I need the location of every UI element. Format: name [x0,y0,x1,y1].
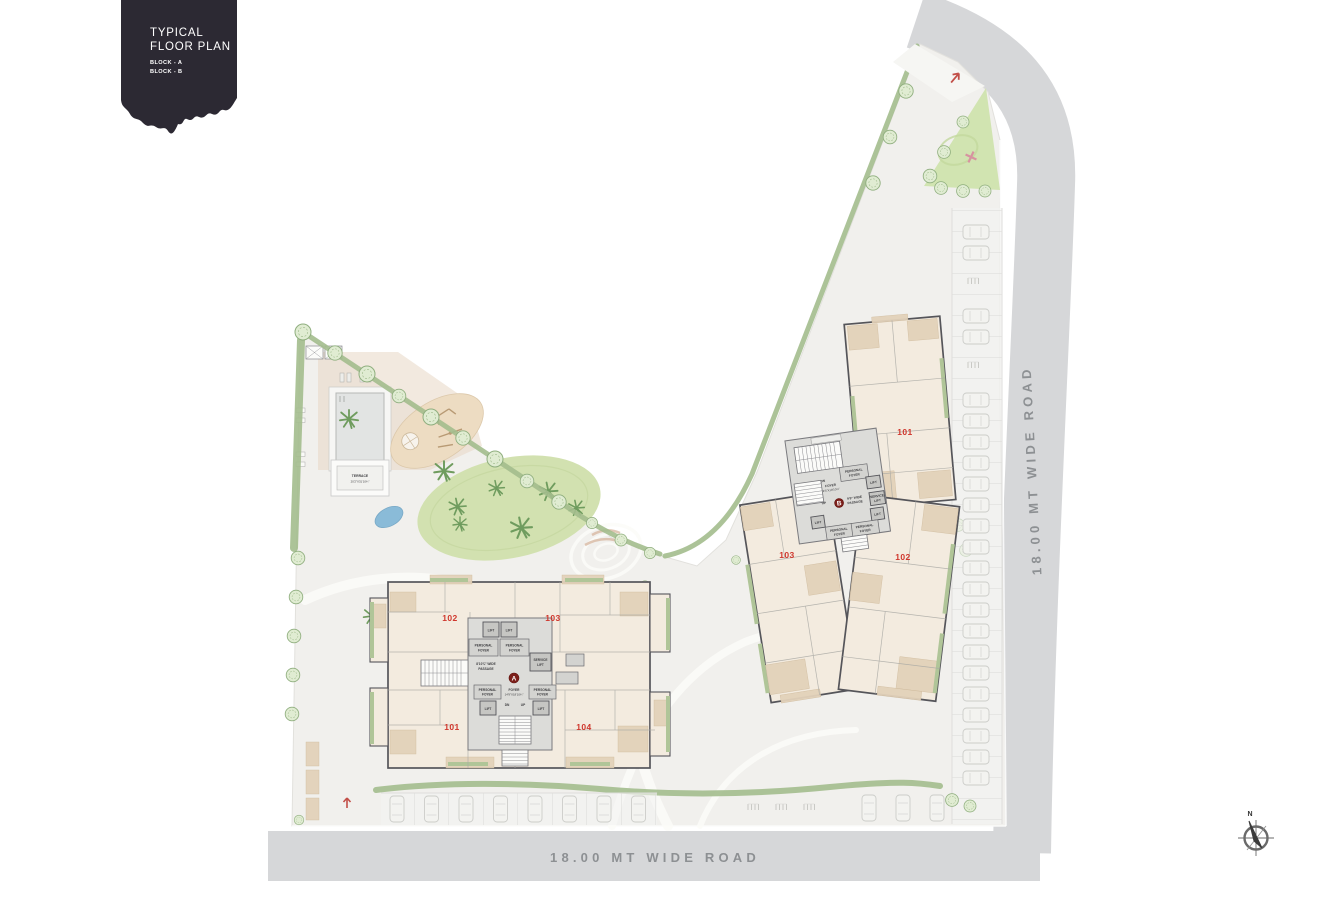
block-a-unit-102-label: 102 [442,613,457,623]
personal-foyer-label: FOYER [537,693,549,697]
tree-icon [392,389,406,403]
stair-left [421,660,468,686]
car-icon [963,225,989,239]
car-icon [896,795,910,821]
tree-icon [957,185,970,198]
car-icon [963,687,989,701]
block-a-unit-101-label: 101 [444,722,459,732]
personal-foyer-label: FOYER [482,693,494,697]
terrace-label: TERRACE [352,474,369,478]
dn-label: DN [505,703,510,707]
passage-label: PASSAGE [478,667,493,671]
tree-icon [291,551,305,565]
title-line-2: FLOOR PLAN [150,41,231,53]
personal-foyer-label: PERSONAL [475,644,493,648]
title-block: TYPICAL FLOOR PLAN BLOCK - A BLOCK - B [121,0,237,133]
tree-icon [866,176,880,190]
car-icon [528,796,542,822]
car-icon [563,796,577,822]
block-a-unit-103-label: 103 [545,613,560,623]
title-line-1: TYPICAL [150,27,204,39]
entrance-steps [502,750,528,766]
title-block-a-line: BLOCK - A [150,60,182,66]
car-icon [963,519,989,533]
tree-icon [294,815,304,825]
passage-label: 8'10¾" WIDE [476,662,495,666]
car-icon [963,435,989,449]
car-icon [963,498,989,512]
car-icon [963,540,989,554]
lift-label: LIFT [506,629,513,633]
personal-foyer-label: FOYER [478,649,490,653]
car-icon [963,666,989,680]
tree-icon [552,495,566,509]
tree-icon [946,794,959,807]
car-icon [963,771,989,785]
car-icon [963,456,989,470]
tree-icon [286,668,300,682]
tree-icon [923,169,937,183]
lift-label: LIFT [485,707,492,711]
car-icon [963,582,989,596]
tree-icon [615,534,627,546]
tree-icon [938,146,951,159]
personal-foyer-label: PERSONAL [506,644,524,648]
car-icon [963,330,989,344]
tree-icon [328,346,342,360]
car-icon [963,561,989,575]
tree-icon [295,324,311,340]
car-icon [963,645,989,659]
tree-icon [883,130,897,144]
tree-icon [586,517,597,528]
tree-icon [289,590,303,604]
lift-label: LIFT [538,707,545,711]
lift-label: LIFT [488,629,495,633]
block-b-unit-102-label: 102 [895,552,910,562]
foyer-label: FOYER [509,688,521,692]
foyer-dim-label: 14'9"X18'10¾" [505,693,524,697]
site-plan-svg: TERRACE 20'2"X31'10¾" [0,0,1322,901]
car-icon [425,796,439,822]
car-icon [597,796,611,822]
tree-icon [899,84,913,98]
car-icon [963,414,989,428]
tree-icon [732,556,741,565]
tree-icon [287,629,301,643]
service-lift-label: SERVICE [534,658,548,662]
car-icon [963,477,989,491]
block-a-badge-label: A [512,676,517,683]
service-lift-label: LIFT [537,663,544,667]
car-icon [862,795,876,821]
tree-icon [957,116,969,128]
tree-icon [644,547,655,558]
car-icon [494,796,508,822]
tree-icon [979,185,991,197]
compass-north-label: N [1247,811,1252,818]
tree-icon [964,800,976,812]
block-a: LIFT LIFT PERSONAL FOYER PERSONAL FOYER … [370,575,670,768]
personal-foyer-label: PERSONAL [479,688,497,692]
car-icon [963,624,989,638]
compass: N [1238,811,1274,856]
title-background [121,0,237,133]
planter-boxes-left [306,742,319,820]
stair-mid [794,480,824,506]
tree-icon [935,182,948,195]
swimming-pool [329,387,391,471]
block-b: PERSONAL FOYER LIFT DN FOYER 9'3"X19'10½… [736,311,960,705]
tree-icon [423,409,439,425]
car-icon [963,708,989,722]
car-icon [963,309,989,323]
block-b-unit-103-label: 103 [779,550,794,560]
road-bottom-label: 18.00 MT WIDE ROAD [550,850,760,865]
car-icon [963,750,989,764]
tree-icon [520,474,534,488]
stair-center [499,716,531,744]
block-a-unit-104-label: 104 [576,722,591,732]
title-block-b-line: BLOCK - B [150,69,183,75]
tree-icon [359,366,375,382]
terrace-dim-label: 20'2"X31'10¾" [351,480,370,484]
car-icon [963,603,989,617]
block-b-unit-101-label: 101 [897,427,912,437]
compass-needle [1249,821,1262,848]
car-icon [963,729,989,743]
car-icon [930,795,944,821]
car-icon [963,393,989,407]
personal-foyer-label: FOYER [509,649,521,653]
tree-icon [487,451,503,467]
tree-icon [456,431,470,445]
tree-icon [285,707,299,721]
car-icon [390,796,404,822]
terrace: TERRACE 20'2"X31'10¾" [331,460,389,496]
car-icon [459,796,473,822]
car-icon [963,246,989,260]
floor-plan-canvas: TERRACE 20'2"X31'10¾" [0,0,1322,901]
personal-foyer-label: PERSONAL [534,688,552,692]
car-icon [632,796,646,822]
